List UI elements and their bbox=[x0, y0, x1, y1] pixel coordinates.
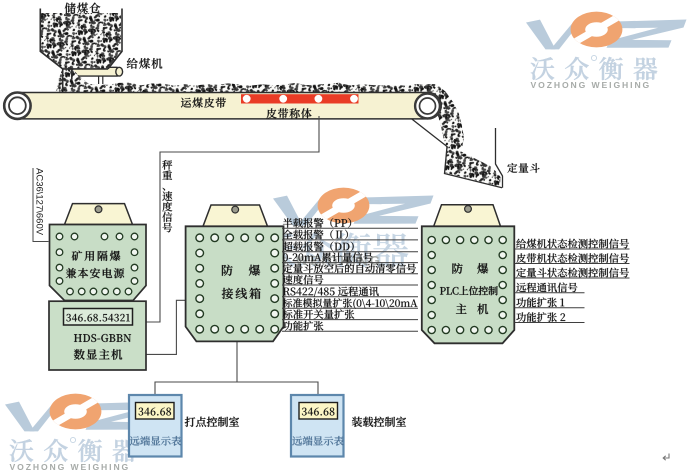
svg-text:VOZHONG WEIGHING: VOZHONG WEIGHING bbox=[531, 80, 652, 90]
svg-text:VOZHONG WEIGHING: VOZHONG WEIGHING bbox=[10, 462, 131, 470]
svg-text:AC36\127\660V: AC36\127\660V bbox=[34, 168, 45, 236]
